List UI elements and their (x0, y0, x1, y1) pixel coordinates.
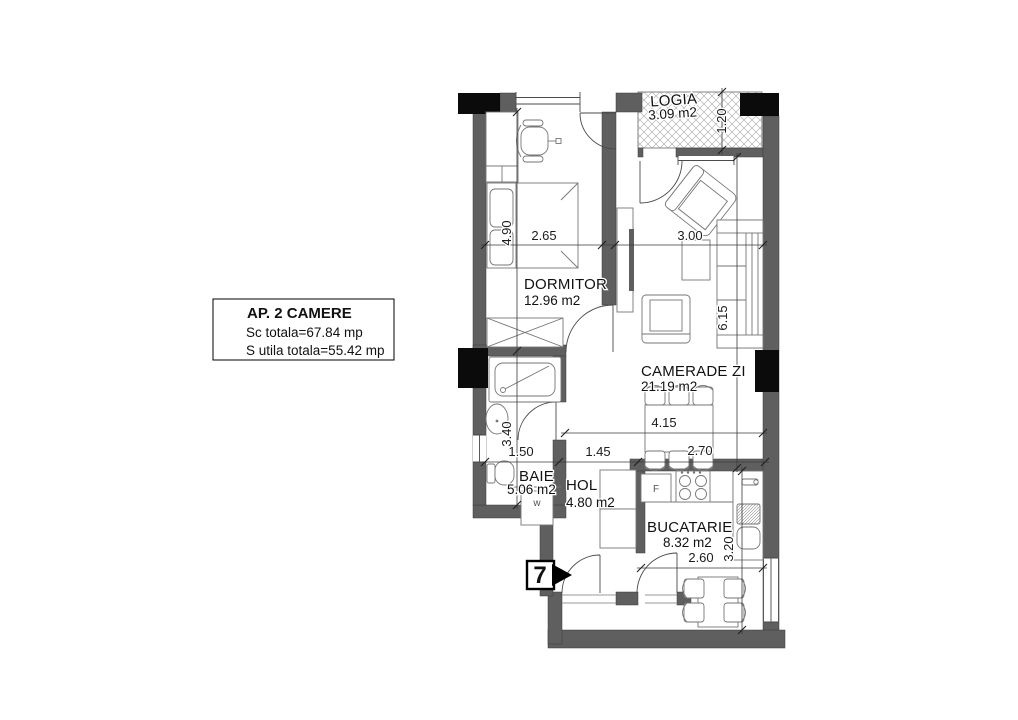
armchair-center (642, 295, 690, 343)
tv-stand (617, 208, 634, 312)
wall-bottom (548, 630, 785, 648)
svg-text:4.80 m2: 4.80 m2 (566, 495, 615, 510)
kitchen-chair (683, 603, 705, 622)
kitchen-chair (683, 579, 705, 598)
wall-entry-stub (616, 592, 638, 605)
tv-icon (629, 229, 634, 291)
office-chair (517, 120, 562, 162)
shower (489, 357, 561, 402)
bathroom-door (518, 402, 556, 440)
dining-chair (645, 451, 665, 471)
wall-logia-bottom-a (638, 148, 643, 157)
fridge: F (641, 474, 671, 502)
dim-hall-living-span: 4.15 (651, 415, 676, 430)
wall-left-upper (473, 105, 486, 348)
dim-bath-width: 1.50 (508, 444, 533, 459)
entrance-marker: 7 (527, 561, 572, 589)
dim-logia-depth: 1.20 (714, 108, 729, 133)
apartment-title: AP. 2 CAMERE (247, 305, 352, 322)
kitchen-door (637, 553, 677, 593)
column-mid-right (755, 350, 779, 392)
svg-text:8.32 m2: 8.32 m2 (663, 535, 712, 550)
floor-plan-page: w (0, 0, 1018, 720)
svg-text:DORMITOR: DORMITOR (524, 276, 607, 293)
dim-bedroom-depth: 4.90 (499, 220, 514, 245)
column-mid-left (458, 348, 488, 388)
svg-text:21.19 m2: 21.19 m2 (641, 379, 697, 394)
built-area-text: Sc totala=67.84 mp (246, 325, 363, 340)
apartment-info-box: AP. 2 CAMERE Sc totala=67.84 mp S utila … (213, 299, 394, 360)
room-label-dormitor: DORMITOR 12.96 m2 (524, 276, 607, 308)
dim-dining-width: 2.70 (687, 443, 712, 458)
svg-text:5.06 m2: 5.06 m2 (507, 482, 556, 497)
svg-text:HOL: HOL (566, 477, 597, 494)
fridge-label: F (653, 484, 659, 495)
column-top-right (740, 93, 779, 116)
dim-bath-depth: 3.40 (499, 421, 514, 446)
dim-living-depth: 6.15 (715, 305, 730, 330)
floor-plan-drawing: w (0, 0, 1018, 720)
dim-kitchen-depth: 3.20 (721, 536, 736, 561)
wall-top-a (500, 93, 518, 112)
svg-text:CAMERADE ZI: CAMERADE ZI (641, 363, 746, 380)
stove (676, 471, 710, 502)
dim-bedroom-width: 2.65 (531, 228, 556, 243)
room-label-camera-de-zi: CAMERADE ZI 21.19 m2 (641, 363, 746, 394)
bathroom-window (473, 435, 486, 462)
usable-area-text: S utila totala=55.42 mp (246, 343, 384, 358)
svg-text:BUCATARIE: BUCATARIE (647, 519, 732, 536)
bedroom-window (516, 92, 580, 112)
coffee-table (682, 240, 710, 280)
kitchen-sink (733, 471, 763, 560)
dim-hall-width: 1.45 (585, 444, 610, 459)
svg-text:12.96 m2: 12.96 m2 (524, 293, 580, 308)
living-furniture (617, 164, 763, 471)
bedroom-hall-door (566, 305, 613, 352)
wardrobe (487, 318, 563, 347)
wall-porch-left (548, 592, 562, 644)
bathroom-fixtures: w (486, 357, 561, 525)
room-label-bucatarie: BUCATARIE 8.32 m2 (647, 519, 732, 550)
entrance-number: 7 (533, 562, 546, 589)
dim-kitchen-width: 2.60 (688, 550, 713, 565)
wall-top-b (616, 93, 642, 112)
column-top-left (458, 93, 500, 114)
desk (486, 112, 518, 182)
room-label-logia: LOGIA 3.09 m2 (647, 90, 699, 122)
dining-chair (669, 451, 689, 471)
logia-living-window (678, 156, 734, 165)
dim-living-width: 3.00 (677, 228, 702, 243)
entrance-arrow-icon (552, 564, 572, 586)
washing-machine-label: w (532, 498, 541, 509)
